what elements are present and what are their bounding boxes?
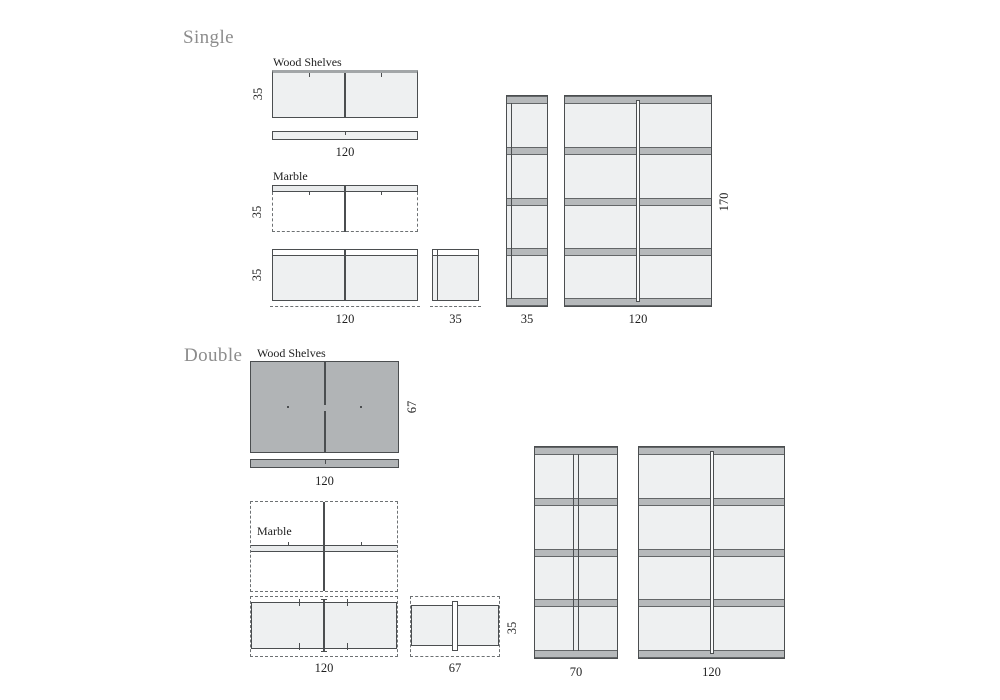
double-wood-front-bar xyxy=(250,459,399,468)
double-wood-shelves-label: Wood Shelves xyxy=(257,346,326,361)
tick-mark xyxy=(381,73,382,77)
double-marble-top-view: Marble xyxy=(250,501,398,592)
shelf-band xyxy=(507,248,547,256)
center-divider xyxy=(710,451,714,654)
single-marble-front-view xyxy=(272,249,418,301)
single-tall-wide-unit xyxy=(564,95,712,307)
single-tall-wide-width-dim: 120 xyxy=(564,312,712,327)
divider-cap xyxy=(321,651,327,652)
double-marble-front-view xyxy=(250,596,398,657)
shelf-band xyxy=(535,599,617,607)
center-dot xyxy=(360,406,362,408)
single-marble-side-view xyxy=(432,249,479,301)
panel-edge-line xyxy=(511,103,512,299)
double-wood-depth-dim: 67 xyxy=(405,392,419,422)
single-marble-label: Marble xyxy=(273,169,308,184)
double-wood-width-dim: 120 xyxy=(250,474,399,489)
double-section-title: Double xyxy=(184,345,242,367)
panel-fill xyxy=(433,256,478,300)
baseline-dashed xyxy=(270,306,420,307)
tick-mark xyxy=(288,542,289,545)
single-wood-front-bar xyxy=(272,131,418,140)
single-marble-width-dim: 120 xyxy=(272,312,418,327)
shelf-band xyxy=(535,549,617,557)
single-wood-shelves-label: Wood Shelves xyxy=(273,55,342,70)
tick-mark xyxy=(299,643,300,650)
double-marble-label: Marble xyxy=(257,524,292,539)
tick-mark xyxy=(309,192,310,195)
center-divider-line xyxy=(324,362,326,405)
single-tall-height-dim: 170 xyxy=(717,187,731,217)
tick-mark xyxy=(345,132,346,135)
double-tall-narrow-width-dim: 70 xyxy=(534,665,618,680)
panel-edge-line xyxy=(437,250,438,300)
single-marble-depth-dim: 35 xyxy=(250,197,264,227)
double-panel-line xyxy=(578,454,579,651)
single-tall-narrow-unit xyxy=(506,95,548,307)
center-divider-line xyxy=(344,186,346,232)
single-wood-depth-dim: 35 xyxy=(251,79,265,109)
tick-mark xyxy=(309,73,310,77)
single-section-title: Single xyxy=(183,27,234,49)
shelf-band xyxy=(507,198,547,206)
shelf-band xyxy=(535,447,617,455)
single-wood-width-dim: 120 xyxy=(272,145,418,160)
tick-mark xyxy=(361,542,362,545)
double-wood-top-view xyxy=(250,361,399,453)
double-marble-width-dim: 120 xyxy=(250,661,398,676)
divider-cap xyxy=(321,599,327,600)
single-tall-narrow-width-dim: 35 xyxy=(506,312,548,327)
center-divider-line xyxy=(324,411,326,452)
center-divider xyxy=(636,100,640,302)
single-marble-side-width-dim: 35 xyxy=(432,312,479,327)
single-wood-top-view xyxy=(272,70,418,118)
center-divider-line xyxy=(344,73,346,117)
shelf-band xyxy=(535,498,617,506)
tick-mark xyxy=(347,599,348,606)
center-divider-line xyxy=(323,599,325,652)
spec-sheet: Single Wood Shelves 35 120 Marble 35 35 … xyxy=(0,0,1000,700)
center-divider-line xyxy=(323,502,325,591)
shelf-band xyxy=(507,147,547,155)
tick-mark xyxy=(299,599,300,606)
baseline-dashed xyxy=(430,306,481,307)
double-tall-wide-width-dim: 120 xyxy=(638,665,785,680)
double-tall-wide-unit xyxy=(638,446,785,659)
double-marble-side-view xyxy=(410,596,500,657)
tick-mark xyxy=(381,192,382,195)
shelf-band xyxy=(507,96,547,104)
shelf-band xyxy=(507,298,547,306)
tick-mark xyxy=(347,643,348,650)
center-divider-line xyxy=(344,249,346,301)
double-marble-side-height-dim: 35 xyxy=(505,613,519,643)
double-panel-line xyxy=(452,601,458,651)
tick-mark xyxy=(325,460,326,464)
double-marble-side-width-dim: 67 xyxy=(410,661,500,676)
shelf-band xyxy=(535,650,617,658)
double-panel-line xyxy=(573,454,574,651)
double-tall-narrow-unit xyxy=(534,446,618,659)
single-marble-front-height-dim: 35 xyxy=(250,260,264,290)
center-dot xyxy=(287,406,289,408)
